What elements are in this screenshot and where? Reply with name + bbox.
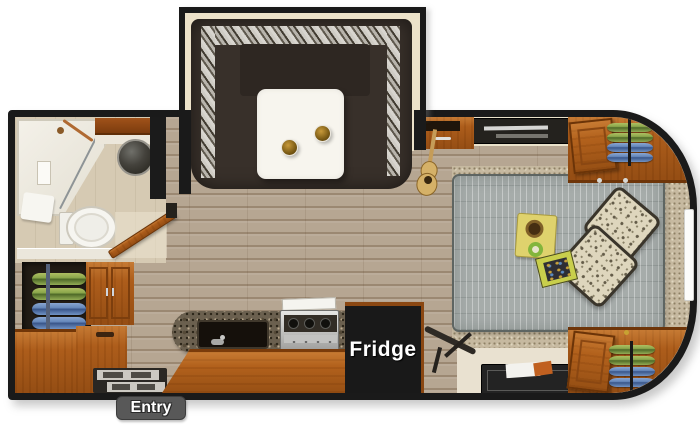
burner-icon xyxy=(288,318,299,329)
kitchen-cabinet-face xyxy=(162,349,346,393)
cup-icon xyxy=(528,241,544,257)
round-vessel-sink xyxy=(117,139,154,176)
dinette-back-cushion xyxy=(201,26,400,45)
slideout-wall-right xyxy=(414,110,426,150)
door-panel xyxy=(577,127,609,166)
cup-holder-icon xyxy=(281,139,298,156)
latch-dot xyxy=(623,178,628,183)
burner-icon xyxy=(304,318,315,329)
tv xyxy=(467,118,573,144)
entry-label-badge: Entry xyxy=(116,396,186,420)
step-tread xyxy=(97,370,159,380)
hanging-garment-green xyxy=(32,288,86,300)
book-cover-art xyxy=(543,257,571,281)
shower-niche xyxy=(37,161,51,185)
storage-bench xyxy=(15,329,77,393)
wardrobe-door-open xyxy=(567,331,616,393)
slideout-wall-left xyxy=(179,110,191,194)
bathroom-wall xyxy=(150,117,166,199)
stove-grate xyxy=(284,315,337,332)
tread-slot xyxy=(103,372,123,378)
drawer-handle xyxy=(96,332,114,337)
shower-head-icon xyxy=(57,127,64,134)
tv-glint xyxy=(496,134,548,138)
folding-stand xyxy=(423,317,485,375)
door-jamb xyxy=(166,203,177,218)
tv-glint xyxy=(484,125,548,130)
breakfast-tray xyxy=(515,213,558,260)
dinette-side-cushion xyxy=(201,26,215,178)
kitchen-sink xyxy=(197,320,269,349)
plate-icon xyxy=(525,219,544,238)
toilet-seat xyxy=(74,213,109,242)
hanging-garment-blue xyxy=(32,303,86,315)
clothes-rod xyxy=(628,118,631,166)
stand-leg xyxy=(432,347,442,373)
cabinet-handle xyxy=(112,288,114,296)
orange-folder xyxy=(533,361,553,376)
stove-lid xyxy=(282,297,336,311)
faucet-icon xyxy=(220,335,225,340)
tread-slot xyxy=(137,384,155,390)
storage-tray xyxy=(481,364,578,393)
tread-slot xyxy=(131,372,151,378)
dinette-side-cushion xyxy=(387,26,400,176)
overhead-cabinet xyxy=(86,262,134,325)
floorplan-canvas: Fridge xyxy=(0,0,700,433)
step-tread xyxy=(107,382,165,392)
towel xyxy=(20,192,54,223)
entry-label: Entry xyxy=(131,399,172,417)
fridge-label: Fridge xyxy=(349,338,416,362)
refrigerator: Fridge xyxy=(345,306,424,393)
entry-steps xyxy=(93,368,167,393)
window xyxy=(684,209,694,301)
door-panel xyxy=(576,340,607,385)
bathroom-counter xyxy=(17,248,116,259)
stove-controls xyxy=(284,335,337,343)
clothes-rod xyxy=(630,341,633,391)
latch-dot xyxy=(597,178,602,183)
range-stove xyxy=(280,310,339,354)
cabinet-handle xyxy=(106,288,108,296)
bathroom-vanity xyxy=(95,118,150,135)
hanging-garment-green xyxy=(32,273,86,285)
clothes-rod xyxy=(46,264,50,332)
cup-holder-icon xyxy=(314,125,331,142)
dinette-table xyxy=(257,89,344,179)
tread-slot xyxy=(112,384,130,390)
burner-icon xyxy=(320,318,331,329)
key-dot xyxy=(624,330,629,335)
